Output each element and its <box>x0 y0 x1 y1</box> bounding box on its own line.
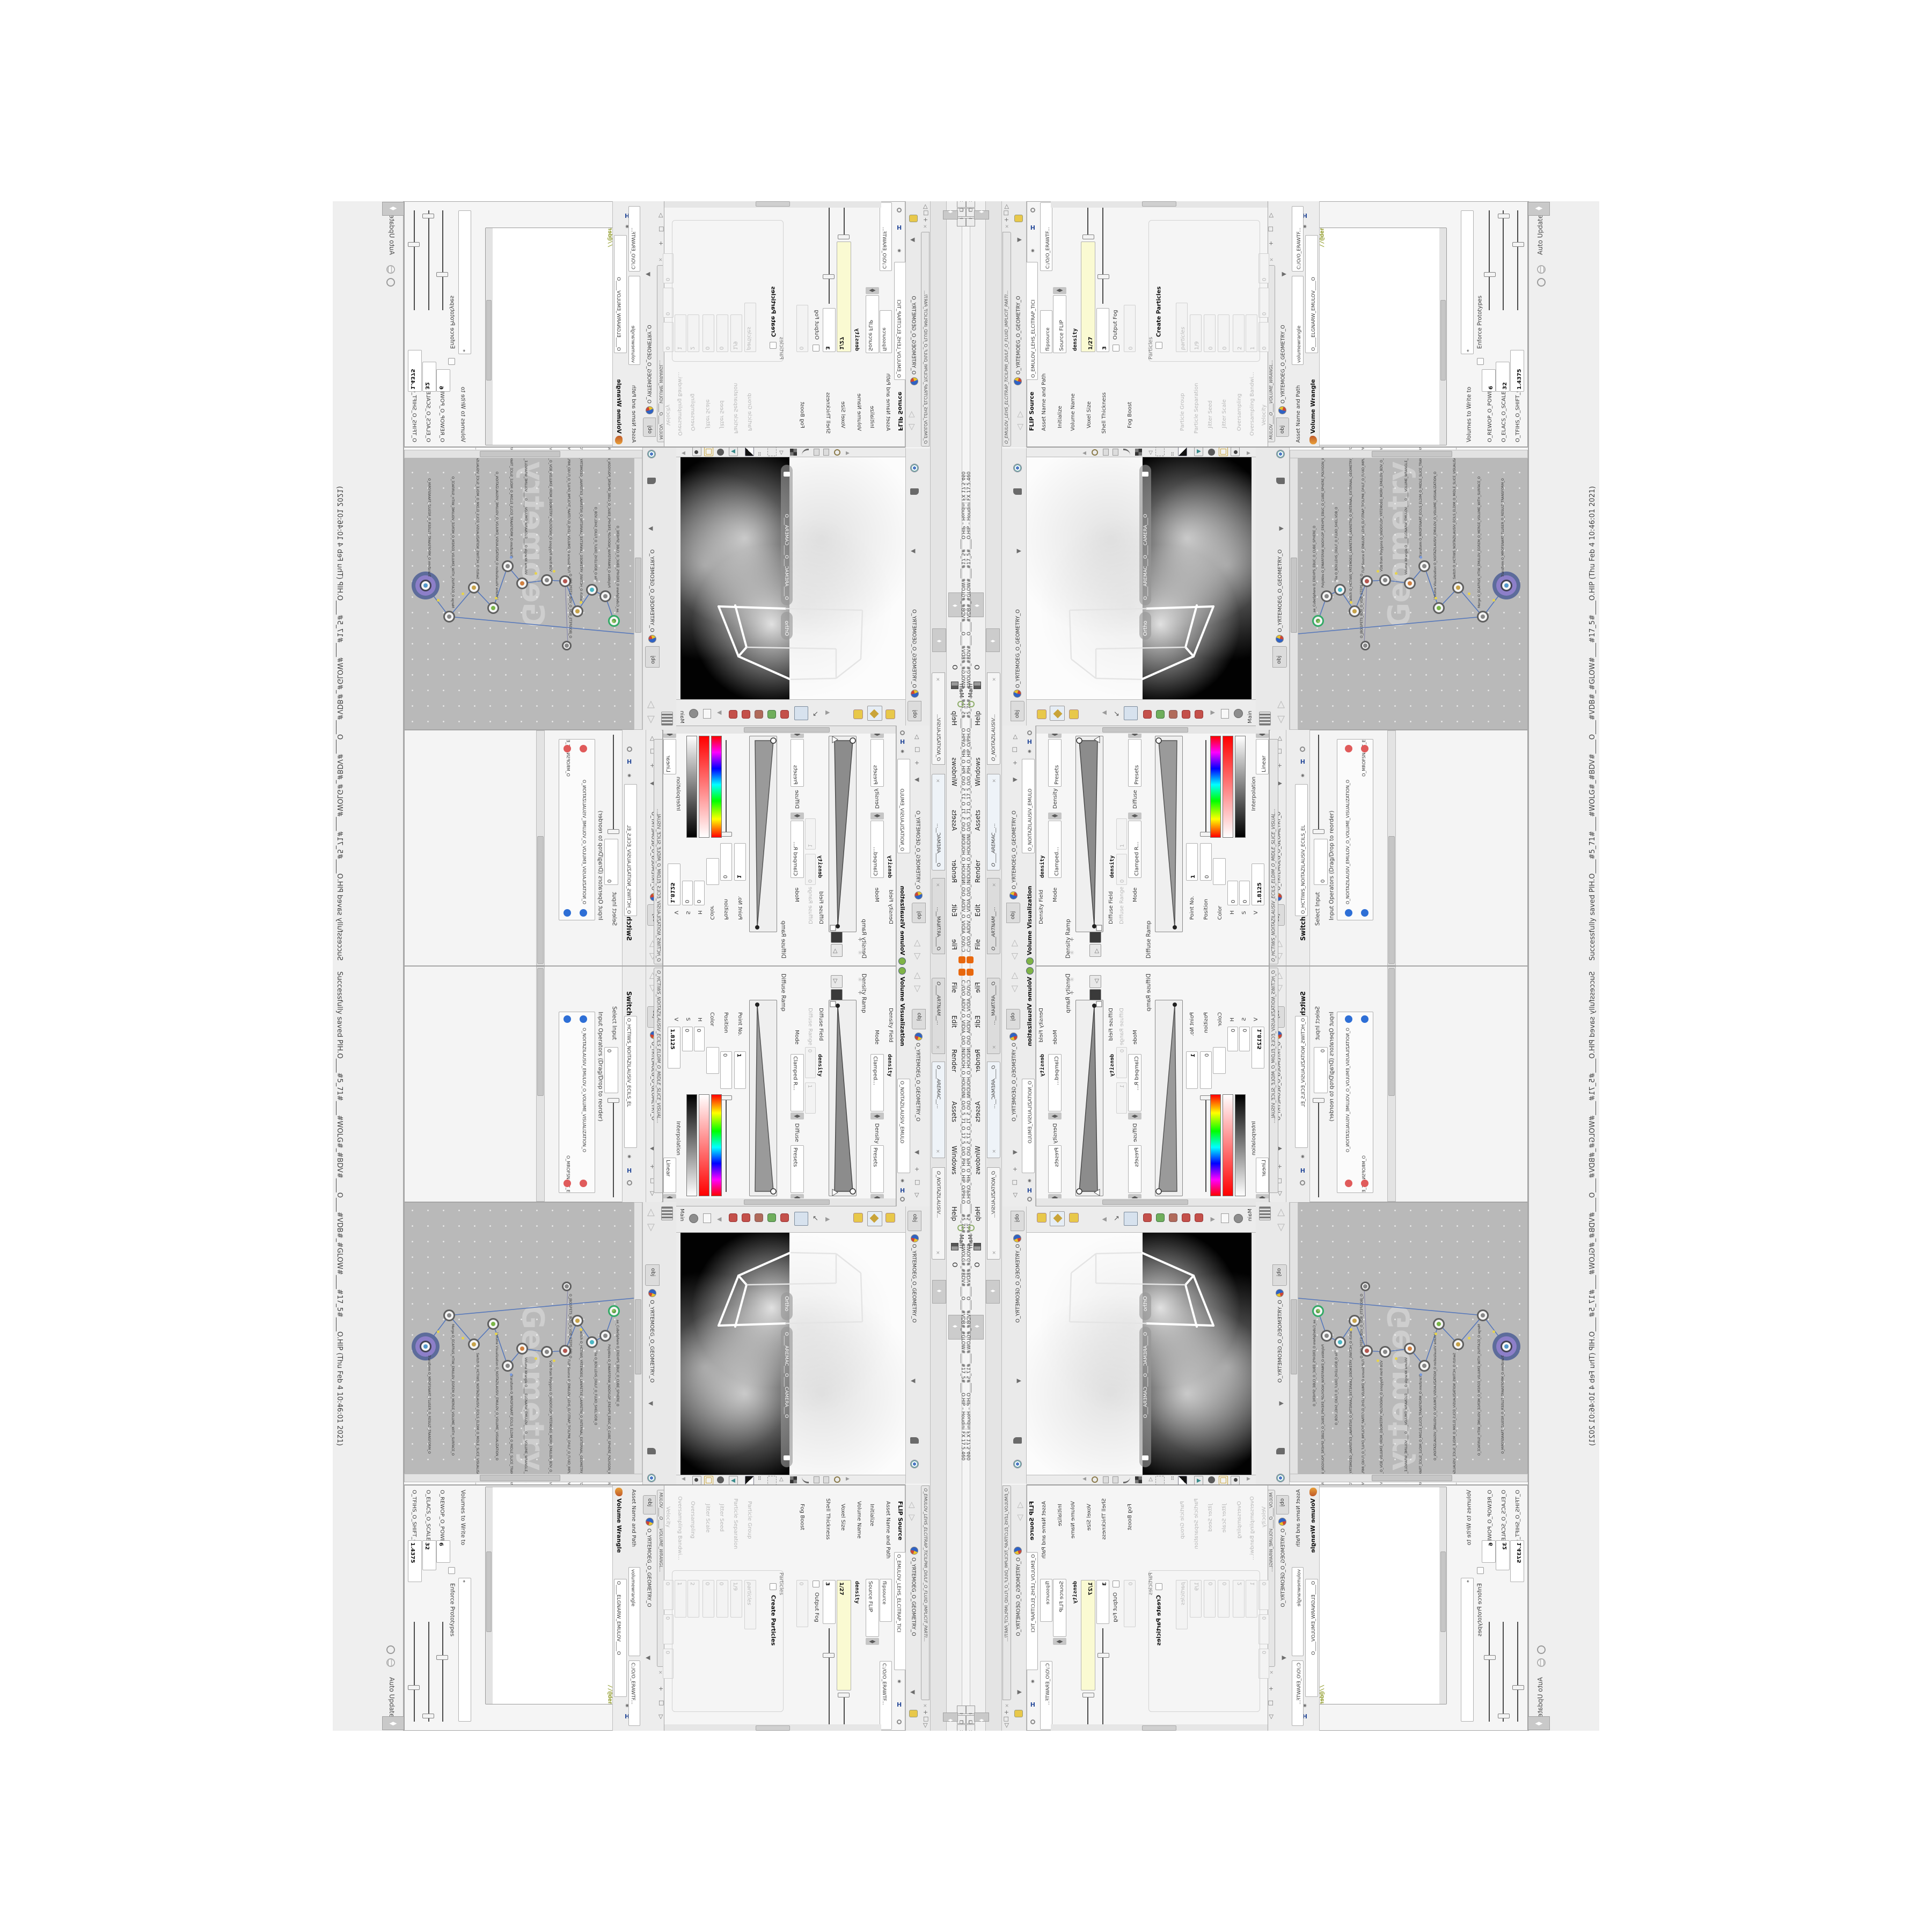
network-editor[interactable]: Geometry Transform O_MROFSNART_TLUSER_O_… <box>1290 450 1528 730</box>
page-icon[interactable] <box>823 449 829 456</box>
power-field[interactable]: 6 <box>436 369 450 392</box>
shell-field[interactable]: 3 <box>823 308 836 352</box>
tab-close-icon[interactable]: × <box>658 257 663 262</box>
yellow-layout-icon[interactable] <box>885 709 895 719</box>
tab-close-icon[interactable]: × <box>936 1045 940 1050</box>
tab-close-icon[interactable]: × <box>1269 1670 1274 1675</box>
slider-knob[interactable] <box>1082 235 1094 239</box>
tab-close-icon[interactable]: × <box>992 676 996 682</box>
bullseye-icon[interactable] <box>910 1460 919 1468</box>
volvis-node-name-field[interactable]: O_NOITAZILAUSIV_EMULO <box>1022 1079 1035 1173</box>
camera-pill[interactable]: O____AREMAC___O____CAMERA___O <box>781 1327 793 1467</box>
keyring-icon[interactable] <box>834 449 840 456</box>
back-icon[interactable]: ◀ <box>648 525 653 532</box>
obj-tab[interactable]: obj <box>1272 1264 1287 1286</box>
ramp-plus-icon[interactable]: + <box>858 936 862 943</box>
bullseye-icon[interactable] <box>647 450 656 458</box>
node-flag[interactable] <box>535 572 537 575</box>
volumes-field[interactable]: * <box>1461 1578 1474 1722</box>
page-icon[interactable] <box>823 1476 829 1483</box>
scroll-thumb[interactable] <box>1291 558 1297 633</box>
node-flag[interactable] <box>1468 592 1470 595</box>
tripod-icon[interactable]: △ <box>779 1476 784 1482</box>
network-editor[interactable]: Geometry Transform O_MROFSNART_TLUSER_O_… <box>1290 1202 1528 1482</box>
voxel-field[interactable]: 1/27 <box>1081 241 1095 352</box>
desktop-grid-icon[interactable] <box>974 1243 981 1250</box>
star-tool-icon[interactable] <box>767 1213 776 1222</box>
diffuse-field-value[interactable]: density <box>1110 855 1115 878</box>
enforce-checkbox[interactable] <box>1477 358 1484 365</box>
node-vdb-steps[interactable] <box>1360 1282 1370 1291</box>
node-flag[interactable] <box>535 1357 537 1360</box>
select-input-slider[interactable] <box>613 735 614 834</box>
yellow-layout-icon[interactable] <box>1037 1213 1046 1223</box>
shell-slider[interactable] <box>829 202 830 304</box>
pane-handle[interactable]: ◀▶ <box>382 1716 404 1730</box>
reorder-arrow-icon[interactable] <box>1345 1015 1352 1023</box>
search-icon[interactable] <box>1027 1197 1032 1202</box>
node-vdb-from-polygons[interactable] <box>1379 1346 1391 1358</box>
mode-spinner[interactable]: ◀▶ <box>870 813 884 819</box>
network-globe-icon[interactable] <box>1537 1658 1546 1667</box>
diamond-layout-button[interactable] <box>1050 1211 1065 1226</box>
pane-handle[interactable]: ◀▶ <box>1528 1716 1550 1730</box>
pane-handle[interactable]: ◀▶ <box>932 628 946 652</box>
gear-icon[interactable]: ✷ <box>900 748 905 755</box>
scroll-thumb[interactable] <box>635 558 641 633</box>
initialize-spinner[interactable]: ◀▶ <box>1053 287 1066 294</box>
flip-name-field[interactable]: flipsource <box>1040 1579 1052 1622</box>
back-tool-icon[interactable]: ◀ <box>1211 709 1215 716</box>
density-ramp-widget[interactable] <box>1075 736 1103 932</box>
node-cubesphere[interactable] <box>1312 1305 1324 1317</box>
flip-name-field[interactable]: flipsource <box>880 1579 892 1622</box>
density-presets-dropdown[interactable]: Presets <box>1048 1145 1062 1193</box>
pane-cross-icon[interactable]: + <box>1269 1685 1274 1692</box>
select-input-field[interactable]: 0 <box>604 839 618 885</box>
back-icon[interactable]: ◀ <box>1018 1688 1022 1695</box>
network-globe-icon[interactable] <box>1537 265 1546 274</box>
shell-field[interactable]: 3 <box>1096 1580 1109 1624</box>
vw-path-field[interactable]: C:/O/O_ERAWTF... <box>1292 206 1304 272</box>
gear-icon[interactable]: ✷ <box>1300 772 1305 779</box>
node-transform-result[interactable] <box>1501 580 1512 591</box>
s-field[interactable]: 0 <box>682 1027 693 1051</box>
diffuse-ramp-widget[interactable] <box>1155 1000 1183 1196</box>
search-icon[interactable] <box>1300 1180 1305 1185</box>
node-flag[interactable] <box>1492 599 1495 602</box>
density-presets-dropdown[interactable]: Presets <box>1048 739 1062 787</box>
page-icon[interactable] <box>814 1476 819 1483</box>
density-field-value[interactable]: density <box>887 855 892 878</box>
nav-down-icon[interactable]: ▽ <box>1277 699 1285 711</box>
back-icon[interactable]: ◀ <box>914 777 919 784</box>
pane-cross-icon[interactable]: + <box>658 1685 663 1692</box>
main-desktop-icon[interactable] <box>957 701 964 707</box>
scroll-thumb[interactable] <box>486 300 492 380</box>
vw-name-field[interactable]: volumewrangle <box>1292 1567 1304 1656</box>
anvil-icon[interactable] <box>910 1437 919 1444</box>
menu-edit[interactable]: Edit <box>951 904 957 917</box>
slider-knob[interactable] <box>1498 1714 1510 1718</box>
slider-knob[interactable] <box>1313 1098 1324 1103</box>
menu-assets[interactable]: Assets <box>975 1101 981 1122</box>
slider-knob[interactable] <box>1313 829 1324 834</box>
delete-item-icon[interactable] <box>580 1180 587 1187</box>
play-icon[interactable]: ▶ <box>1082 450 1086 456</box>
red-tool-icon[interactable] <box>1182 1213 1190 1222</box>
pane-split-icon[interactable]: □ <box>914 1179 920 1185</box>
network-hscroll[interactable] <box>1290 450 1528 458</box>
slider-knob[interactable] <box>1097 1653 1109 1658</box>
back-icon[interactable]: ◀ <box>910 1688 914 1695</box>
tab-close-icon[interactable]: × <box>992 1250 996 1256</box>
dashed-box-button[interactable] <box>1155 447 1165 456</box>
node-flag[interactable] <box>1395 572 1397 575</box>
film-clip-icon[interactable] <box>661 1206 673 1220</box>
shift-field[interactable]: 1.4375 <box>408 1540 422 1582</box>
enforce-checkbox[interactable] <box>1477 1567 1484 1574</box>
delete-item-icon[interactable] <box>1361 1180 1368 1187</box>
pane-collapse-icon[interactable]: ▽ <box>923 1722 927 1729</box>
flip-name-field[interactable]: flipsource <box>1040 310 1052 353</box>
anvil-icon[interactable] <box>647 1448 656 1454</box>
volume-name-value[interactable]: density <box>854 328 859 351</box>
color-swatch[interactable] <box>706 858 719 885</box>
curve-icon[interactable] <box>1123 1476 1130 1483</box>
tab-close-icon[interactable]: × <box>992 1149 996 1154</box>
scroll-thumb[interactable] <box>744 1199 830 1205</box>
scroll-thumb[interactable] <box>537 836 544 964</box>
camera-tool-icon[interactable] <box>1234 1214 1243 1223</box>
close-button[interactable]: × <box>966 201 975 208</box>
dashed-box-button[interactable] <box>1155 1476 1165 1485</box>
nav-up-icon[interactable]: △ <box>1277 714 1285 726</box>
hue-gradient-bar[interactable] <box>1210 1094 1221 1196</box>
node-polywire[interactable] <box>599 1330 611 1342</box>
ortho-pill[interactable]: Ortho <box>1139 612 1151 640</box>
search-icon[interactable] <box>1030 208 1035 213</box>
mode2-dropdown[interactable]: Clamped R... <box>1128 1054 1141 1111</box>
nav-up-icon[interactable]: △ <box>647 1206 655 1218</box>
menu-file[interactable]: File <box>951 982 957 993</box>
menu-file[interactable]: File <box>975 939 981 950</box>
slider-knob[interactable] <box>838 1693 850 1697</box>
node-file[interactable] <box>1334 584 1346 596</box>
node-polywire[interactable] <box>599 590 611 602</box>
gear-icon[interactable]: ✷ <box>627 772 632 779</box>
four-square-icon[interactable] <box>1135 449 1142 456</box>
close-button[interactable]: × <box>957 201 966 208</box>
seam-handle[interactable]: ◀▶ <box>974 1713 989 1722</box>
minimize-button[interactable]: — <box>957 218 966 226</box>
back-icon[interactable]: ◀ <box>1247 1476 1250 1482</box>
flip-hscroll[interactable] <box>1051 201 1268 208</box>
anvil-icon[interactable] <box>1276 478 1285 484</box>
pane-split-icon[interactable]: □ <box>914 747 920 753</box>
shift-field[interactable]: 1.4375 <box>408 350 422 392</box>
back-icon[interactable]: ◀ <box>682 450 685 456</box>
pane-collapse-icon[interactable]: ▽ <box>914 734 919 741</box>
pane-handle[interactable]: ◀▶ <box>986 1280 1000 1304</box>
select-input-slider[interactable] <box>613 1098 614 1197</box>
node-switch-geometry[interactable] <box>572 605 583 617</box>
density-field-value[interactable]: density <box>887 1054 892 1077</box>
nav-up-icon[interactable]: △ <box>1277 1206 1285 1218</box>
yellow-cop-icon[interactable] <box>1014 215 1023 222</box>
flip-hscroll[interactable] <box>664 201 881 208</box>
main-desktop-label[interactable]: Main <box>968 684 974 698</box>
reorder-arrow-icon[interactable] <box>580 1015 587 1023</box>
keyring-icon[interactable] <box>1092 449 1098 456</box>
network-path[interactable]: O_YRTEMOEG_O_GEOMETRY_O <box>911 296 916 375</box>
power-field[interactable]: 6 <box>436 1540 450 1563</box>
select-input-field[interactable]: 0 <box>1314 1047 1328 1093</box>
td-mode-button[interactable] <box>1124 706 1138 720</box>
diffuse-ramp-widget[interactable] <box>1155 736 1183 932</box>
restore-button[interactable]: ❐ <box>957 1715 966 1724</box>
mode-spinner[interactable]: ◀▶ <box>1048 1113 1062 1119</box>
keyring-icon[interactable] <box>1092 1476 1098 1483</box>
initialize-dropdown[interactable]: Source FLIP <box>1053 295 1066 353</box>
gear-icon[interactable]: ✷ <box>1030 247 1035 254</box>
nav-down-icon[interactable]: ▽ <box>1012 983 1018 993</box>
obj-tab[interactable]: obj <box>645 1264 660 1286</box>
slider-knob[interactable] <box>1498 214 1510 218</box>
node-flag[interactable] <box>510 556 513 559</box>
cone-view-button[interactable] <box>1194 1476 1203 1485</box>
node-merge[interactable] <box>1477 1309 1489 1321</box>
mode-spinner[interactable]: ◀▶ <box>1048 813 1062 819</box>
scale-slider[interactable] <box>1503 1622 1504 1722</box>
node-vdb-from-polygons[interactable] <box>1379 574 1391 586</box>
node-flag[interactable] <box>1435 1333 1437 1335</box>
volumes-field[interactable]: * <box>458 210 471 354</box>
tripod-icon[interactable]: △ <box>779 450 784 456</box>
scroll-thumb[interactable] <box>480 1475 560 1481</box>
scale-slider[interactable] <box>428 210 429 310</box>
s-field[interactable]: 0 <box>682 881 693 905</box>
back-icon[interactable]: ◀ <box>646 271 650 278</box>
scissor-tool-icon[interactable] <box>1169 1213 1177 1222</box>
node-flag[interactable] <box>1492 1330 1495 1333</box>
color-swatch[interactable] <box>1213 858 1226 885</box>
node-transform-slice[interactable] <box>502 1360 514 1372</box>
node-volume-wrangle[interactable] <box>516 1343 528 1355</box>
yellow-layout-icon[interactable] <box>853 1213 863 1223</box>
sync-icon[interactable] <box>386 1645 395 1654</box>
select-input-slider[interactable] <box>1318 735 1319 834</box>
reorder-arrow-icon[interactable] <box>563 1015 571 1023</box>
vw-path-field[interactable]: C:/O/O_ERAWTF... <box>628 1660 640 1726</box>
desktop-grid-icon[interactable] <box>974 682 981 689</box>
rocket-tool-icon[interactable] <box>1143 1213 1152 1222</box>
sync-icon[interactable] <box>1537 278 1546 287</box>
slider-knob[interactable] <box>838 235 850 239</box>
pane-handle[interactable]: ◀▶ <box>932 1280 946 1304</box>
yellow-cop-icon[interactable] <box>909 215 918 222</box>
obj-tab[interactable]: obj <box>645 646 660 668</box>
red-tool-icon[interactable] <box>729 1213 737 1222</box>
tab-camera[interactable]: O____AREMAC__... × <box>932 1062 945 1158</box>
node-volume-wrangle[interactable] <box>1404 577 1416 589</box>
star-tool-icon[interactable] <box>1156 710 1165 719</box>
back-icon[interactable]: ◀ <box>646 1654 650 1661</box>
ramp-star-icon[interactable]: ✳ <box>1070 949 1074 956</box>
obj-tab[interactable]: obj <box>1006 903 1020 923</box>
editor-scrollbar[interactable] <box>1439 1487 1446 1704</box>
diffuse-ramp-widget[interactable] <box>749 1000 777 1196</box>
gear-icon[interactable]: ✷ <box>1027 748 1032 755</box>
obj-tab[interactable]: obj <box>643 418 656 437</box>
switch-pane-tab[interactable]: O_HCTIWS_NOITAZILAUSIV_ECILS_ELDIM_O_MID… <box>654 968 663 1193</box>
cursor-tool-icon[interactable]: ↖ <box>813 1214 818 1223</box>
tab-visualization[interactable]: O_NOITAZILAUSIV... × <box>987 672 1000 765</box>
node-transform-slice[interactable] <box>1418 1360 1430 1372</box>
node-vdb-steps[interactable] <box>562 1282 572 1291</box>
cursor-tool-icon[interactable]: ↖ <box>1114 1214 1119 1223</box>
menu-edit[interactable]: Edit <box>975 904 981 917</box>
nav-up-icon[interactable]: △ <box>647 714 655 726</box>
menu-windows[interactable]: Windows <box>951 757 957 786</box>
network-vscroll[interactable] <box>1290 450 1298 730</box>
menu-help[interactable]: Help <box>975 711 981 726</box>
auto-update-label[interactable]: Auto Update <box>389 1677 395 1717</box>
search-icon[interactable] <box>1030 1719 1035 1724</box>
tab-close-icon[interactable]: × <box>1269 257 1274 262</box>
tab-close-icon[interactable]: × <box>936 1250 940 1256</box>
nav-down-icon[interactable]: ▽ <box>909 1512 915 1522</box>
node-transform-result[interactable] <box>420 1341 431 1352</box>
tripod-icon[interactable]: △ <box>1148 1476 1153 1482</box>
list-item[interactable]: O_MROFSNART_ECILS_ELDIM_O_MIDLE_SLICE_TR… <box>1361 1154 1367 1193</box>
flip-pane-tab[interactable]: O_EMULOV_LEHS_ELCITRAP_TICILPMI_DIULF_O_… <box>921 232 930 447</box>
menu-help[interactable]: Help <box>951 1206 957 1221</box>
slider-knob[interactable] <box>436 272 448 277</box>
switch-scrollbar[interactable] <box>1387 730 1396 965</box>
play-icon[interactable]: ▶ <box>846 450 850 456</box>
diamond-layout-button[interactable] <box>1050 706 1065 721</box>
red-tool-icon[interactable] <box>742 710 750 719</box>
power-slider[interactable] <box>442 1622 443 1722</box>
shift-slider[interactable] <box>1517 1622 1518 1722</box>
shift-slider[interactable] <box>414 1622 415 1722</box>
delete-item-icon[interactable] <box>563 1180 571 1187</box>
scroll-thumb[interactable] <box>756 1725 790 1731</box>
switch-pane-tab[interactable]: O_HCTIWS_NOITAZILAUSIV_ECILS_ELDIM_O_MID… <box>1269 739 1278 964</box>
flip-pane-tab[interactable]: O_EMULOV_LEHS_ELCITRAP_TICILPMI_DIULF_O_… <box>921 1485 930 1700</box>
reorder-arrow-icon[interactable] <box>580 909 587 917</box>
network-path[interactable]: O_YRTEMOEG_O_GEOMETRY_O <box>1016 1244 1021 1323</box>
bw-split-button[interactable] <box>745 1476 754 1485</box>
page-tool-icon[interactable] <box>703 1213 711 1223</box>
voxel-field[interactable]: 1/27 <box>837 1580 851 1690</box>
menu-help[interactable]: Help <box>951 711 957 726</box>
bullseye-icon[interactable] <box>1013 1460 1022 1468</box>
cone-view-button[interactable] <box>729 1476 738 1485</box>
density-presets-dropdown[interactable]: Presets <box>870 1145 884 1193</box>
diffuse-presets-dropdown[interactable]: Presets <box>1128 739 1141 787</box>
flip-name-field[interactable]: flipsource <box>880 310 892 353</box>
saturation-gradient-bar[interactable] <box>1223 736 1233 838</box>
dark-circle-icon[interactable] <box>717 1476 724 1483</box>
back-icon[interactable]: ◀ <box>1013 1148 1018 1155</box>
anvil-icon[interactable] <box>1013 1437 1022 1444</box>
volumes-field[interactable]: * <box>458 1578 471 1722</box>
pane-split-icon[interactable]: □ <box>1268 226 1274 233</box>
bullseye-icon[interactable] <box>1276 450 1285 458</box>
list-item[interactable]: O_NOITAZILAUSIV_EMULOV_O_VOLUME_VISUALIZ… <box>581 778 587 906</box>
nav-down-icon[interactable]: ▽ <box>1017 1512 1023 1522</box>
position-field[interactable]: 0 <box>1200 1051 1212 1089</box>
ortho-pill[interactable]: Ortho <box>781 612 793 640</box>
gear-icon[interactable]: ✷ <box>897 1678 902 1685</box>
node-cubesphere[interactable] <box>608 615 620 627</box>
seam-handle[interactable]: ◀▶ <box>943 210 958 219</box>
flip-pane-tab[interactable]: O_EMULOV_LEHS_ELCITRAP_TICILPMI_DIULF_O_… <box>1002 1485 1011 1700</box>
rocket-tool-icon[interactable] <box>1143 710 1152 719</box>
shell-slider[interactable] <box>1102 202 1103 304</box>
main-desktop-label[interactable]: Main <box>968 1234 974 1248</box>
network-path[interactable]: O_YRTEMOEG_O_GEOMETRY_O <box>649 1300 654 1382</box>
position-slider[interactable] <box>1205 1095 1206 1192</box>
node-flag[interactable] <box>495 597 497 599</box>
pane-split-icon[interactable]: □ <box>1268 1699 1274 1706</box>
reorder-arrow-icon[interactable] <box>1345 909 1352 917</box>
play-tool-icon[interactable]: ▶ <box>1102 709 1107 716</box>
node-flag[interactable] <box>580 601 582 604</box>
network-hscroll[interactable] <box>404 450 642 458</box>
interp-dropdown[interactable]: Linear <box>663 1158 676 1193</box>
curve-icon[interactable] <box>802 1476 809 1483</box>
pane-split-icon[interactable]: □ <box>1004 210 1009 217</box>
diffuse-field-value[interactable]: density <box>817 1054 822 1077</box>
orbit-view-button[interactable] <box>692 447 701 456</box>
back-icon[interactable]: ◀ <box>911 548 915 555</box>
cursor-tool-icon[interactable]: ↖ <box>1114 709 1119 718</box>
sync-icon[interactable] <box>1537 1645 1546 1654</box>
scroll-thumb[interactable] <box>1102 727 1188 733</box>
auto-update-label[interactable]: Auto Update <box>1537 1677 1543 1717</box>
reorder-arrow-icon[interactable] <box>1361 909 1368 917</box>
point-no-field[interactable]: 1 <box>1186 1051 1198 1089</box>
pane-collapse-icon[interactable]: ▽ <box>1005 203 1009 210</box>
menu-extra-o[interactable]: O <box>952 665 958 670</box>
network-path[interactable]: O_YRTEMOEG_O_GEOMETRY_O <box>1281 1528 1286 1607</box>
node-flag[interactable] <box>1350 1328 1352 1331</box>
nav-down-icon[interactable]: ▽ <box>1017 410 1023 420</box>
diamond-layout-button[interactable] <box>867 706 882 721</box>
pane-collapse-icon[interactable]: ▽ <box>1005 1722 1009 1729</box>
mode2-spinner[interactable]: ◀▶ <box>791 813 804 819</box>
diffuse-presets-dropdown[interactable]: Presets <box>1128 1145 1141 1193</box>
tab-close-icon[interactable]: × <box>658 1670 663 1675</box>
menu-windows[interactable]: Windows <box>975 757 981 786</box>
film-clip-icon[interactable] <box>1259 1206 1271 1220</box>
pane-collapse-icon[interactable]: ▽ <box>658 212 663 219</box>
shell-slider[interactable] <box>1102 1628 1103 1730</box>
initialize-spinner[interactable]: ◀▶ <box>1053 1638 1066 1645</box>
interp-dropdown[interactable]: Linear <box>1256 739 1269 774</box>
mode-dropdown[interactable]: Clamped... <box>1048 821 1062 878</box>
auto-update-label[interactable]: Auto Update <box>389 215 395 255</box>
diffuse-field-value[interactable]: density <box>817 855 822 878</box>
slider-knob[interactable] <box>608 1098 619 1103</box>
camera-pill[interactable]: O____AREMAC___O____CAMERA___O <box>781 465 793 605</box>
slider-knob[interactable] <box>1082 1693 1094 1697</box>
network-path[interactable]: O_YRTEMOEG_O_GEOMETRY_O <box>1016 609 1021 688</box>
node-volume-visualization[interactable] <box>1433 1318 1445 1330</box>
